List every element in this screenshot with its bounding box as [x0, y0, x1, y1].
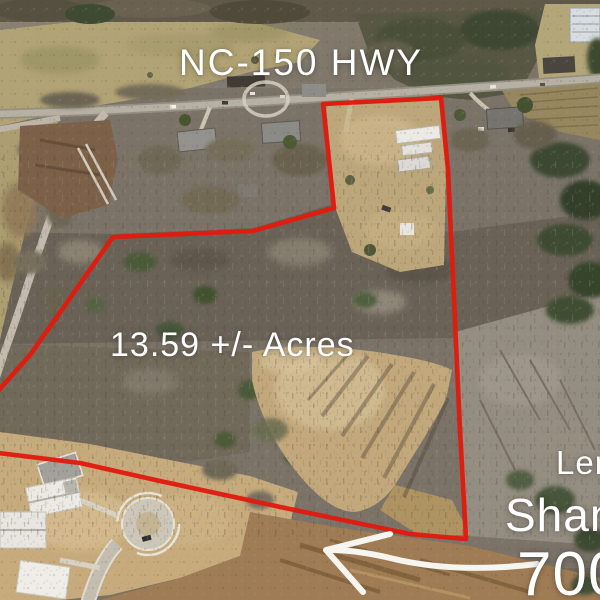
highway-label: NC-150 HWY [179, 44, 423, 81]
side-note-line2: Shannon [505, 492, 600, 538]
side-note-line1: Len [556, 446, 600, 479]
side-note-line3: 700+ [517, 544, 600, 600]
acreage-label: 13.59 +/- Acres [110, 328, 355, 362]
aerial-property-photo: NC-150 HWY 13.59 +/- Acres Len Shannon 7… [0, 0, 600, 600]
